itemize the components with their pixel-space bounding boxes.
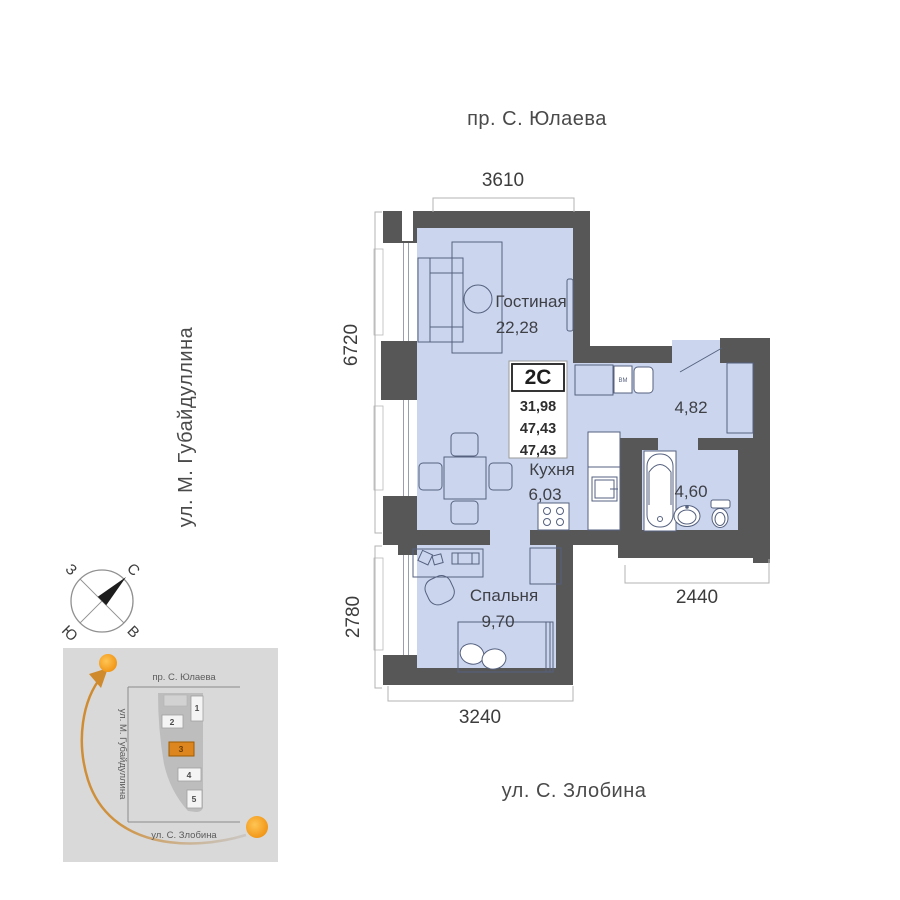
sun-icon-sunrise [246,816,268,838]
room-bathroom-area: 4,60 [674,482,707,501]
room-living-name: Гостиная [495,292,566,311]
sun-icon-sunset [99,654,117,672]
doorway-bathroom [658,438,698,452]
room-bedroom-name: Спальня [470,586,538,605]
doorway-entry [672,340,720,365]
room-hallway-area: 4,82 [674,398,707,417]
kitchen-counter [588,432,620,530]
room-bedroom-area: 9,70 [481,612,514,631]
dim-left-upper: 6720 [341,324,362,366]
apartment-area-total: 47,43 [520,443,556,459]
minimap-street-left: ул. М. Губайдуллина [117,709,128,800]
toilet [711,500,730,508]
apartment-area: 47,43 [520,421,556,437]
doorway-bedroom [490,528,530,547]
apartment-type: 2С [525,366,552,389]
compass-west: З [62,561,80,579]
window-living-1 [398,243,414,341]
compass-east: В [124,623,143,642]
minimap-block-1-label: 1 [195,703,200,713]
minimap-block-unnumbered [164,695,187,706]
washing-machine-label: ВМ [619,378,628,384]
minimap-street-bottom: ул. С. Злобина [151,830,217,841]
apartment-info-card: 2С 31,98 47,43 47,43 [509,361,567,459]
dim-right-lower: 2440 [676,587,718,608]
room-living-area: 22,28 [496,318,539,337]
stove [538,503,569,530]
street-label-bottom: ул. С. Злобина [502,780,647,802]
floor-plan-page: пр. С. Юлаева ул. М. Губайдуллина ул. С.… [0,0,900,900]
apartment-area-living: 31,98 [520,399,556,415]
floor-plan-canvas: пр. С. Юлаева ул. М. Губайдуллина ул. С.… [0,0,900,900]
minimap: пр. С. Юлаева ул. М. Губайдуллина ул. С.… [63,648,278,862]
minimap-block-2-label: 2 [170,717,175,727]
minimap-block-4-label: 4 [187,770,192,780]
room-kitchen-name: Кухня [529,460,575,479]
street-label-left: ул. М. Губайдуллина [175,326,197,527]
compass-south: Ю [58,622,81,645]
fridge [634,367,653,393]
windows [374,243,414,655]
dim-top: 3610 [482,170,524,191]
dim-bottom: 3240 [459,707,501,728]
minimap-street-top: пр. С. Юлаева [152,672,216,683]
room-kitchen-area: 6,03 [528,485,561,504]
compass-north: С [123,560,143,580]
street-label-top: пр. С. Юлаева [467,108,607,130]
window-living-2 [398,400,414,496]
minimap-block-5-label: 5 [192,794,197,804]
window-bedroom [398,555,414,655]
minimap-block-3-label: 3 [179,744,184,754]
wall-recess [402,211,413,241]
compass-needle [98,573,131,606]
dim-left-lower: 2780 [343,596,364,638]
